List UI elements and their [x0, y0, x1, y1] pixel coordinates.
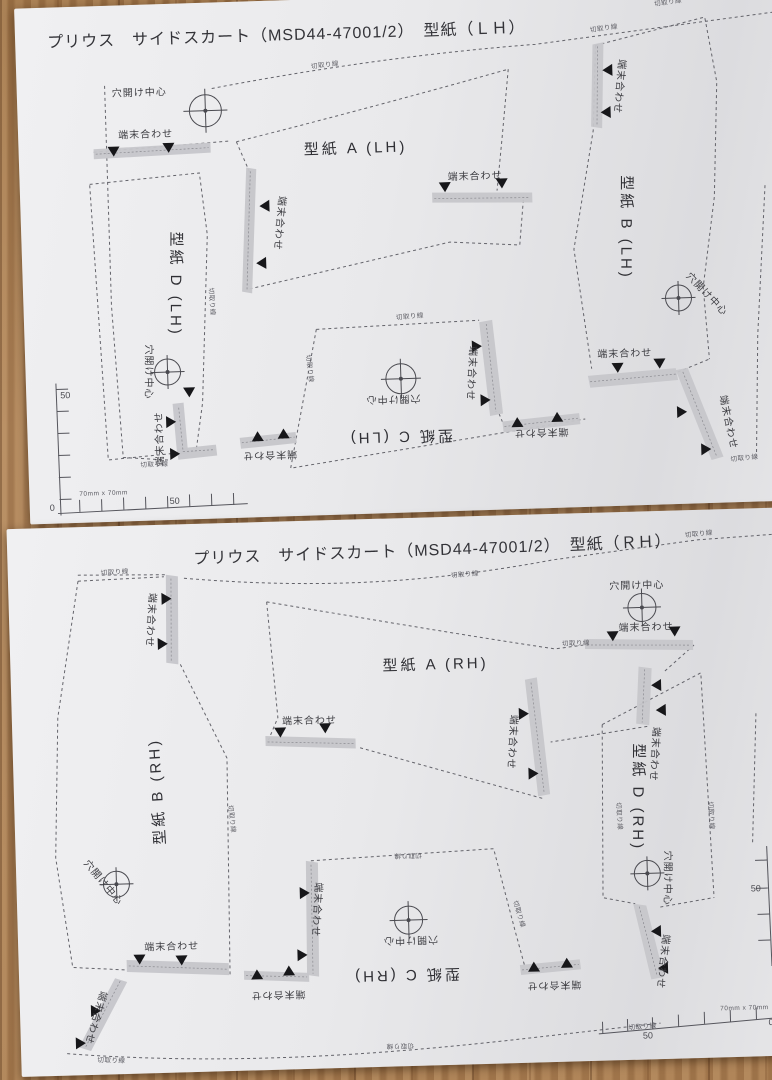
edge-align-label: 端末合わせ	[118, 130, 173, 142]
edge-align-label: 端末合わせ	[618, 623, 673, 635]
cut-line-label: 切取り線	[706, 802, 714, 830]
hole-center-label: 穴開け中心	[112, 88, 167, 100]
ruler-value: 50	[60, 391, 70, 400]
cut-line-label: 切取り線	[562, 641, 590, 648]
hole-center-label: 穴開け中心	[383, 933, 438, 945]
edge-align-label: 端末合わせ	[282, 716, 337, 728]
edge-align-label: 端末合わせ	[155, 411, 167, 466]
piece-d-label-rh: 型紙 D (RH)	[630, 743, 646, 851]
edge-align-label: 端末合わせ	[464, 346, 477, 401]
cut-line-label: 切取り線	[140, 462, 168, 469]
piece-b-label-lh: 型紙 B (LH)	[618, 175, 633, 280]
hole-center-label: 穴開け中心	[661, 851, 671, 906]
hole-center-label: 穴開け中心	[609, 581, 664, 593]
ruler-value: 50	[170, 497, 180, 506]
piece-a-label-lh: 型紙 A (LH)	[303, 139, 407, 157]
hole-center-label: 穴開け中心	[365, 392, 420, 404]
cut-line-label: 切取り線	[394, 851, 422, 858]
cut-line-label: 切取り線	[206, 288, 214, 316]
edge-align-label: 端末合わせ	[526, 978, 581, 990]
sheet-rh: プリウス サイドスカート（MSD44-47001/2） 型紙（ＲＨ） 切取り線 …	[7, 507, 772, 1077]
sheet-rh-linework	[7, 507, 772, 1077]
edge-align-label: 端末合わせ	[143, 592, 156, 647]
cut-line-label: 切取り線	[97, 1058, 125, 1065]
ruler-value: 0	[50, 504, 55, 513]
edge-align-label: 端末合わせ	[144, 942, 199, 954]
edge-align-label: 端末合わせ	[309, 882, 322, 937]
grid-note: 70mm x 70mm	[720, 1005, 769, 1013]
wood-table-background: プリウス サイドスカート（MSD44-47001/2） 型紙（ＬＨ） 切取り線 …	[0, 0, 772, 1080]
piece-c-label-rh: 型紙 C (RH)	[352, 966, 460, 984]
edge-align-label: 端末合わせ	[597, 349, 652, 361]
ruler-value: 0	[768, 1018, 772, 1027]
edge-align-label: 端末合わせ	[242, 448, 297, 460]
edge-align-label: 端末合わせ	[513, 425, 568, 437]
piece-c-label-lh: 型紙 C (LH)	[348, 427, 454, 445]
sheet-lh: プリウス サイドスカート（MSD44-47001/2） 型紙（ＬＨ） 切取り線 …	[14, 0, 772, 524]
edge-align-label: 端末合わせ	[447, 171, 502, 183]
piece-d-label-lh: 型紙 D (LH)	[168, 231, 183, 336]
cut-line-label: 切取り線	[614, 802, 622, 830]
ruler-value: 50	[643, 1031, 653, 1040]
edge-align-label: 端末合わせ	[250, 988, 305, 1000]
edge-align-label: 端末合わせ	[505, 714, 518, 769]
piece-a-label-rh: 型紙 A (RH)	[382, 656, 489, 674]
cut-line-label: 切取り線	[386, 1041, 414, 1048]
edge-align-label: 端末合わせ	[647, 726, 660, 781]
hole-center-label: 穴開け中心	[143, 344, 153, 399]
ruler-value: 50	[751, 884, 761, 893]
sheet-lh-linework	[14, 0, 772, 524]
